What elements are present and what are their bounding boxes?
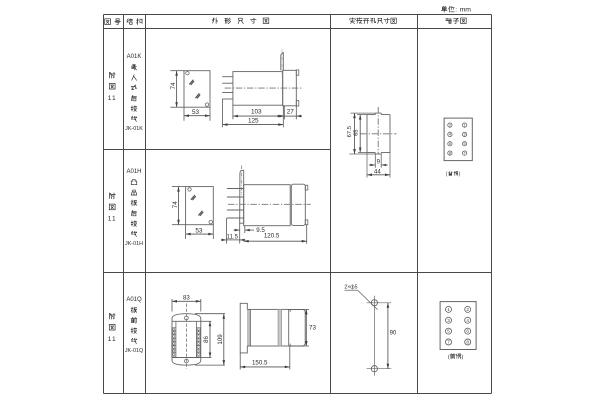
svg-text:27: 27 — [287, 109, 295, 116]
svg-text:1: 1 — [447, 307, 450, 312]
svg-text:2: 2 — [466, 307, 469, 312]
svg-text:3: 3 — [447, 318, 450, 323]
svg-text:A01K: A01K — [127, 54, 142, 60]
svg-text:8: 8 — [466, 340, 469, 345]
svg-text:65: 65 — [354, 129, 360, 135]
svg-text:11.5: 11.5 — [227, 234, 239, 240]
svg-text:2×ф5: 2×ф5 — [344, 285, 357, 291]
svg-text:6: 6 — [449, 142, 451, 146]
svg-text:67.5: 67.5 — [347, 126, 353, 137]
svg-text:): ) — [461, 354, 463, 360]
svg-text:90: 90 — [390, 331, 397, 337]
svg-text:3: 3 — [464, 133, 466, 137]
svg-text:11: 11 — [108, 95, 117, 102]
svg-text:A01H: A01H — [126, 169, 141, 175]
svg-text:7: 7 — [447, 340, 450, 345]
svg-text:A01Q: A01Q — [126, 297, 142, 303]
svg-text:(: ( — [448, 354, 450, 360]
svg-text:125: 125 — [248, 118, 259, 125]
svg-text:5: 5 — [464, 142, 466, 146]
svg-text:5: 5 — [447, 329, 450, 334]
svg-text:7: 7 — [464, 151, 466, 155]
svg-text:JK-01H: JK-01H — [125, 241, 143, 247]
svg-text:6: 6 — [466, 329, 469, 334]
svg-text:mm: mm — [460, 7, 472, 14]
svg-text:8: 8 — [449, 151, 451, 155]
svg-text:83: 83 — [183, 295, 190, 302]
svg-text:120.5: 120.5 — [264, 232, 280, 239]
svg-text:73: 73 — [309, 325, 316, 332]
svg-text:2: 2 — [449, 123, 451, 127]
svg-text:4: 4 — [449, 133, 451, 137]
svg-text:103: 103 — [251, 109, 262, 116]
svg-text:53: 53 — [192, 109, 200, 116]
svg-text:74: 74 — [172, 201, 179, 209]
svg-text:53: 53 — [195, 227, 203, 234]
svg-text::: : — [455, 7, 457, 14]
svg-text:109: 109 — [217, 334, 224, 345]
svg-text:74: 74 — [170, 82, 177, 90]
svg-text:86: 86 — [203, 336, 210, 343]
svg-text:4: 4 — [466, 318, 469, 323]
svg-text:11: 11 — [108, 216, 117, 223]
svg-text:JK-01K: JK-01K — [125, 126, 143, 132]
svg-text:44: 44 — [374, 170, 381, 176]
svg-text:1: 1 — [464, 123, 466, 127]
svg-text:11: 11 — [108, 336, 117, 343]
svg-text:150.5: 150.5 — [252, 360, 268, 367]
svg-text:JK-01Q: JK-01Q — [125, 348, 143, 354]
